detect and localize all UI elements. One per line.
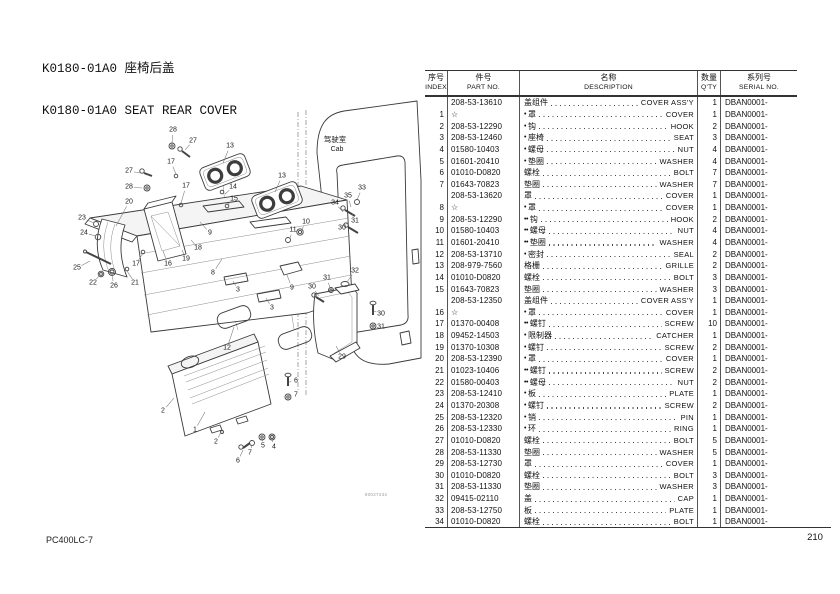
callout-label: 2 — [161, 408, 165, 415]
header-serial-en: SERIAL NO. — [739, 83, 779, 94]
row-part-no: 01580-10403 — [448, 144, 520, 156]
row-qty: 5 — [698, 435, 721, 447]
bullet-marker: • — [524, 111, 526, 118]
row-description: 垫圈WASHER — [520, 178, 698, 190]
table-row: 29208-53-12730罩COVER1DBAN0001- — [425, 458, 797, 470]
row-part-no: 01010-D0820 — [448, 272, 520, 284]
row-name-cn: 螺栓 — [524, 435, 540, 446]
table-row: 13208-979-7560格栅GRILLE2DBAN0001- — [425, 260, 797, 272]
row-qty: 4 — [698, 155, 721, 167]
callout-label: 22 — [89, 280, 97, 287]
row-description: •环RING — [520, 423, 698, 435]
row-serial: DBAN0001- — [721, 481, 797, 493]
row-name-en: SEAL — [674, 250, 694, 259]
row-qty: 1 — [698, 330, 721, 342]
row-name-cn: 螺母 — [530, 377, 546, 388]
callout-leader — [218, 432, 221, 438]
callout-label: 35 — [344, 193, 352, 200]
row-serial: DBAN0001- — [721, 388, 797, 400]
row-index: 26 — [425, 423, 448, 435]
row-description: 螺栓BOLT — [520, 435, 698, 447]
row-serial: DBAN0001- — [721, 178, 797, 190]
row-index: 24 — [425, 400, 448, 412]
row-index: 30 — [425, 470, 448, 482]
table-row: 3001010-D0820螺栓BOLT3DBAN0001- — [425, 470, 797, 482]
row-description: •螺钉SCREW — [520, 400, 698, 412]
row-name-en: COVER ASS'Y — [641, 98, 694, 107]
row-part-no: 208-53-12750 — [448, 504, 520, 516]
callout-label: 20 — [125, 199, 133, 206]
row-name-cn: 螺栓 — [524, 167, 540, 178]
row-name-cn: 螺母 — [528, 144, 544, 155]
table-row: 2201580-00403••螺母NUT2DBAN0001- — [425, 376, 797, 388]
row-index: 3 — [425, 132, 448, 144]
row-index: 18 — [425, 330, 448, 342]
bullet-marker: •• — [524, 216, 528, 223]
row-description: 罩COVER — [520, 458, 698, 470]
row-serial: DBAN0001- — [721, 248, 797, 260]
bullet-marker: •• — [524, 367, 528, 374]
row-index: 23 — [425, 388, 448, 400]
row-serial: DBAN0001- — [721, 330, 797, 342]
table-row: 2701010-D0820螺栓BOLT5DBAN0001- — [425, 435, 797, 447]
row-qty: 2 — [698, 120, 721, 132]
callout-leader — [112, 275, 113, 281]
header-description: 名称 DESCRIPTION — [520, 71, 698, 95]
callout-leader — [166, 398, 174, 407]
row-serial: DBAN0001- — [721, 504, 797, 516]
row-index: 34 — [425, 516, 448, 528]
callout-label: 12 — [223, 345, 231, 352]
header-part-en: PART NO. — [467, 83, 500, 94]
row-name-cn: 格栅 — [524, 260, 540, 271]
row-part-no: 01601-20410 — [448, 155, 520, 167]
dotted-leader — [535, 504, 666, 516]
row-part-no: 208-53-12410 — [448, 388, 520, 400]
callout-label: 33 — [358, 185, 366, 192]
row-index: 4 — [425, 144, 448, 156]
callout-label: 30 — [338, 225, 346, 232]
row-name-en: WASHER — [660, 285, 694, 294]
dotted-leader — [543, 167, 671, 179]
row-description: •螺母NUT — [520, 144, 698, 156]
dotted-leader — [549, 237, 657, 249]
row-description: ••垫圈WASHER — [520, 237, 698, 249]
callout-leader — [185, 145, 190, 150]
row-part-no: 208-53-11330 — [448, 446, 520, 458]
row-index — [425, 97, 448, 109]
table-row: 25208-53-12320•销PIN1DBAN0001- — [425, 411, 797, 423]
row-index: 31 — [425, 481, 448, 493]
header-index-en: INDEX — [425, 83, 447, 94]
row-description: ••螺母NUT — [520, 376, 698, 388]
row-name-cn: 罩 — [528, 353, 536, 364]
row-name-en: HOOK — [671, 122, 694, 131]
row-name-en: BOLT — [674, 436, 694, 445]
bullet-marker: •• — [524, 320, 528, 327]
callout-label: 6 — [236, 458, 240, 465]
row-part-no: 01010-D0820 — [448, 167, 520, 179]
header-part-no: 件号 PART NO. — [448, 71, 520, 95]
row-part-no: ☆ — [448, 202, 520, 214]
table-row: 2401370-20308•螺钉SCREW2DBAN0001- — [425, 400, 797, 412]
dotted-leader — [543, 260, 663, 272]
table-row: 3208-53-12460•座椅SEAT3DBAN0001- — [425, 132, 797, 144]
dotted-leader — [539, 411, 678, 423]
footer-page-number: 210 — [798, 532, 832, 543]
row-name-cn: 螺栓 — [524, 470, 540, 481]
callout-label: 34 — [331, 200, 339, 207]
row-qty: 1 — [698, 493, 721, 505]
row-qty: 1 — [698, 388, 721, 400]
row-serial: DBAN0001- — [721, 97, 797, 109]
dotted-leader — [547, 248, 671, 260]
callout-label: 32 — [351, 268, 359, 275]
row-qty: 1 — [698, 516, 721, 528]
dotted-leader — [547, 144, 675, 156]
table-row: 2208-53-12290•钩HOOK2DBAN0001- — [425, 120, 797, 132]
dotted-leader — [543, 283, 657, 295]
callout-label: 5 — [261, 443, 265, 450]
dotted-leader — [535, 458, 663, 470]
table-row: 23208-53-12410•板PLATE1DBAN0001- — [425, 388, 797, 400]
callout-label: 7 — [248, 450, 252, 457]
callout-label: 27 — [189, 138, 197, 145]
table-row: 33208-53-12750板PLATE1DBAN0001- — [425, 504, 797, 516]
row-name-cn: 螺母 — [530, 225, 546, 236]
upper-cover-panel — [85, 186, 352, 332]
row-description: 垫圈WASHER — [520, 283, 698, 295]
table-row: 1501643-70823垫圈WASHER3DBAN0001- — [425, 283, 797, 295]
dotted-leader — [543, 516, 671, 528]
row-name-en: COVER — [666, 203, 694, 212]
row-index: 29 — [425, 458, 448, 470]
table-row: 1☆•罩COVER1DBAN0001- — [425, 109, 797, 121]
row-description: •罩COVER — [520, 202, 698, 214]
row-name-cn: 螺栓 — [524, 516, 540, 527]
row-name-cn: 罩 — [528, 307, 536, 318]
row-name-cn: 盖 — [524, 493, 532, 504]
parts-catalog-page: { "page": { "title_line1": "K0180-01A0 座… — [0, 0, 840, 594]
callout-label: 13 — [278, 173, 286, 180]
row-name-en: NUT — [678, 378, 694, 387]
row-qty: 10 — [698, 318, 721, 330]
table-row: 12208-53-13710•密封SEAL2DBAN0001- — [425, 248, 797, 260]
row-name-en: SCREW — [665, 401, 694, 410]
row-name-en: WASHER — [660, 180, 694, 189]
row-description: •限制器CATCHER — [520, 330, 698, 342]
row-part-no: 01370-00408 — [448, 318, 520, 330]
row-index: 21 — [425, 365, 448, 377]
row-serial: DBAN0001- — [721, 190, 797, 202]
row-part-no: 01023-10406 — [448, 365, 520, 377]
row-name-cn: 钩 — [528, 121, 536, 132]
row-part-no: 208-53-12290 — [448, 120, 520, 132]
row-name-cn: 座椅 — [528, 132, 544, 143]
dotted-leader — [541, 213, 668, 225]
row-qty: 1 — [698, 423, 721, 435]
row-serial: DBAN0001- — [721, 411, 797, 423]
bullet-marker: •• — [524, 239, 528, 246]
table-row: 31208-53-11330垫圈WASHER3DBAN0001- — [425, 481, 797, 493]
table-row: 3401010-D0820螺栓BOLT1DBAN0001- — [425, 516, 797, 528]
row-serial: DBAN0001- — [721, 225, 797, 237]
row-name-cn: 螺栓 — [524, 272, 540, 283]
row-qty: 1 — [698, 202, 721, 214]
row-name-cn: 垫圈 — [530, 237, 546, 248]
parts-table: 序号 INDEX 件号 PART NO. 名称 DESCRIPTION 数量 Q… — [425, 70, 797, 528]
row-index: 19 — [425, 341, 448, 353]
row-serial: DBAN0001- — [721, 470, 797, 482]
row-name-en: SCREW — [665, 319, 694, 328]
dotted-leader — [539, 388, 666, 400]
row-index: 8 — [425, 202, 448, 214]
bullet-marker: • — [524, 251, 526, 258]
row-serial: DBAN0001- — [721, 318, 797, 330]
row-qty: 1 — [698, 97, 721, 109]
callout-label: 26 — [110, 283, 118, 290]
table-row: 8☆•罩COVER1DBAN0001- — [425, 202, 797, 214]
row-name-en: COVER — [666, 459, 694, 468]
row-name-en: PLATE — [669, 506, 694, 515]
row-name-en: WASHER — [660, 448, 694, 457]
row-serial: DBAN0001- — [721, 307, 797, 319]
row-name-en: PIN — [681, 413, 694, 422]
table-row: 3209415-02110盖CAP1DBAN0001- — [425, 493, 797, 505]
callout-label: 10 — [302, 219, 310, 226]
callout-label: 18 — [194, 245, 202, 252]
row-part-no: 01580-00403 — [448, 376, 520, 388]
dotted-leader — [543, 470, 671, 482]
dotted-leader — [539, 423, 671, 435]
row-name-cn: 盖组件 — [524, 295, 548, 306]
row-serial: DBAN0001- — [721, 202, 797, 214]
row-part-no: 208-53-12460 — [448, 132, 520, 144]
row-name-en: SCREW — [665, 343, 694, 352]
row-name-en: COVER — [666, 191, 694, 200]
row-part-no: 208-53-12390 — [448, 353, 520, 365]
row-serial: DBAN0001- — [721, 283, 797, 295]
dotted-leader — [543, 178, 657, 190]
row-index: 11 — [425, 237, 448, 249]
row-name-cn: 螺钉 — [528, 400, 544, 411]
row-qty: 4 — [698, 225, 721, 237]
row-name-cn: 销 — [528, 412, 536, 423]
row-serial: DBAN0001- — [721, 400, 797, 412]
row-qty: 2 — [698, 400, 721, 412]
table-row: 1001580-10403••螺母NUT4DBAN0001- — [425, 225, 797, 237]
callout-leader — [374, 311, 376, 312]
callout-leader — [240, 450, 243, 456]
callout-label: 27 — [125, 168, 133, 175]
row-name-cn: 盖组件 — [524, 97, 548, 108]
row-serial: DBAN0001- — [721, 132, 797, 144]
row-qty: 3 — [698, 470, 721, 482]
row-index: 22 — [425, 376, 448, 388]
row-qty: 3 — [698, 283, 721, 295]
dotted-leader — [539, 202, 663, 214]
row-name-cn: 螺钉 — [530, 318, 546, 329]
row-part-no: 208-979-7560 — [448, 260, 520, 272]
row-description: •垫圈WASHER — [520, 155, 698, 167]
bracket-right — [314, 284, 360, 362]
row-name-en: BOLT — [674, 273, 694, 282]
row-name-cn: 垫圈 — [524, 481, 540, 492]
row-index: 16 — [425, 307, 448, 319]
callout-label: 1 — [193, 427, 197, 434]
row-description: 螺栓BOLT — [520, 167, 698, 179]
row-name-cn: 板 — [528, 388, 536, 399]
row-part-no: 09415-02110 — [448, 493, 520, 505]
lower-cover-panel — [168, 334, 271, 436]
row-name-en: WASHER — [660, 238, 694, 247]
row-serial: DBAN0001- — [721, 435, 797, 447]
row-name-en: CATCHER — [656, 331, 694, 340]
table-rows: 208-53-13610盖组件COVER ASS'Y1DBAN0001-1☆•罩… — [425, 97, 797, 528]
dotted-leader — [555, 330, 653, 342]
row-part-no: 208-53-11330 — [448, 481, 520, 493]
row-serial: DBAN0001- — [721, 260, 797, 272]
row-description: •罩COVER — [520, 307, 698, 319]
bullet-marker: • — [524, 134, 526, 141]
row-description: •密封SEAL — [520, 248, 698, 260]
row-index — [425, 295, 448, 307]
row-index: 25 — [425, 411, 448, 423]
row-qty: 4 — [698, 144, 721, 156]
row-name-en: PLATE — [669, 389, 694, 398]
row-serial: DBAN0001- — [721, 493, 797, 505]
dotted-leader — [543, 446, 657, 458]
callout-leader — [134, 172, 140, 173]
row-serial: DBAN0001- — [721, 144, 797, 156]
row-part-no: 01010-D0820 — [448, 516, 520, 528]
row-qty: 7 — [698, 178, 721, 190]
callout-label: 19 — [182, 256, 190, 263]
row-qty: 5 — [698, 446, 721, 458]
row-index: 27 — [425, 435, 448, 447]
table-row: 601010-D0820螺栓BOLT7DBAN0001- — [425, 167, 797, 179]
row-description: 盖组件COVER ASS'Y — [520, 295, 698, 307]
header-part-cn: 件号 — [476, 73, 492, 84]
row-part-no: 01643-70823 — [448, 178, 520, 190]
bullet-marker: •• — [524, 227, 528, 234]
callout-label: 8 — [211, 270, 215, 277]
table-row: 701643-70823垫圈WASHER7DBAN0001- — [425, 178, 797, 190]
callout-label: 9 — [208, 230, 212, 237]
row-qty: 2 — [698, 248, 721, 260]
callout-leader — [349, 201, 351, 207]
callout-leader — [134, 187, 142, 188]
callout-leader — [225, 190, 229, 194]
row-index: 13 — [425, 260, 448, 272]
row-part-no: 09452-14503 — [448, 330, 520, 342]
row-part-no: 01010-D0820 — [448, 435, 520, 447]
row-name-cn: 螺钉 — [528, 342, 544, 353]
callout-leader — [357, 193, 360, 200]
callout-label: 28 — [125, 184, 133, 191]
header-index-cn: 序号 — [428, 73, 444, 84]
footer-model-code: PC400LC-7 — [46, 535, 93, 545]
row-description: 盖CAP — [520, 493, 698, 505]
dotted-leader — [547, 155, 657, 167]
row-part-no: 208-53-12330 — [448, 423, 520, 435]
row-description: •螺钉SCREW — [520, 341, 698, 353]
dotted-leader — [543, 435, 671, 447]
row-description: ••螺钉SCREW — [520, 318, 698, 330]
row-name-cn: 密封 — [528, 249, 544, 260]
callout-label: 31 — [377, 324, 385, 331]
table-row: 1701370-00408••螺钉SCREW10DBAN0001- — [425, 318, 797, 330]
row-index: 6 — [425, 167, 448, 179]
bullet-marker: • — [524, 309, 526, 316]
callout-label: 13 — [226, 143, 234, 150]
row-name-cn: 垫圈 — [524, 179, 540, 190]
table-row: 26208-53-12330•环RING1DBAN0001- — [425, 423, 797, 435]
callout-leader — [89, 234, 96, 236]
row-qty: 2 — [698, 365, 721, 377]
row-name-en: SCREW — [665, 366, 694, 375]
row-part-no: 208-53-13610 — [448, 97, 520, 109]
row-description: ••螺母NUT — [520, 225, 698, 237]
dotted-leader — [543, 481, 657, 493]
row-serial: DBAN0001- — [721, 353, 797, 365]
row-part-no: ☆ — [448, 109, 520, 121]
table-row: 28208-53-11330垫圈WASHER5DBAN0001- — [425, 446, 797, 458]
row-qty: 4 — [698, 237, 721, 249]
callout-label: 4 — [272, 444, 276, 451]
row-name-en: COVER — [666, 110, 694, 119]
row-name-en: NUT — [678, 145, 694, 154]
bullet-marker: • — [524, 204, 526, 211]
row-description: 螺栓BOLT — [520, 470, 698, 482]
bullet-marker: • — [524, 332, 526, 339]
row-name-cn: 环 — [528, 423, 536, 434]
row-qty: 1 — [698, 411, 721, 423]
row-qty: 2 — [698, 376, 721, 388]
row-serial: DBAN0001- — [721, 272, 797, 284]
drawing-number: 00027434 — [365, 492, 388, 497]
table-row: 501601-20410•垫圈WASHER4DBAN0001- — [425, 155, 797, 167]
row-name-en: HOOK — [671, 215, 694, 224]
row-name-en: GRILLE — [666, 261, 694, 270]
bullet-marker: •• — [524, 379, 528, 386]
row-name-en: COVER — [666, 308, 694, 317]
row-description: •钩HOOK — [520, 120, 698, 132]
header-serial: 系列号 SERIAL NO. — [721, 71, 797, 95]
row-index: 5 — [425, 155, 448, 167]
row-index: 9 — [425, 213, 448, 225]
row-description: ••钩HOOK — [520, 213, 698, 225]
row-qty: 2 — [698, 341, 721, 353]
table-row: 1101601-20410••垫圈WASHER4DBAN0001- — [425, 237, 797, 249]
callout-label: 17 — [132, 261, 140, 268]
callout-label: 17 — [167, 159, 175, 166]
row-part-no: 01370-10308 — [448, 341, 520, 353]
row-serial: DBAN0001- — [721, 155, 797, 167]
row-qty: 1 — [698, 190, 721, 202]
dotted-leader — [535, 493, 675, 505]
dotted-leader — [549, 365, 662, 377]
row-serial: DBAN0001- — [721, 237, 797, 249]
row-serial: DBAN0001- — [721, 341, 797, 353]
table-row: 208-53-12350盖组件COVER ASS'Y1DBAN0001- — [425, 295, 797, 307]
header-desc-en: DESCRIPTION — [584, 83, 633, 94]
cab-label-cn: 驾驶室 — [324, 134, 347, 144]
bullet-marker: • — [524, 414, 526, 421]
row-part-no: 01370-20308 — [448, 400, 520, 412]
callout-leader — [81, 261, 90, 266]
callout-label: 29 — [338, 354, 346, 361]
